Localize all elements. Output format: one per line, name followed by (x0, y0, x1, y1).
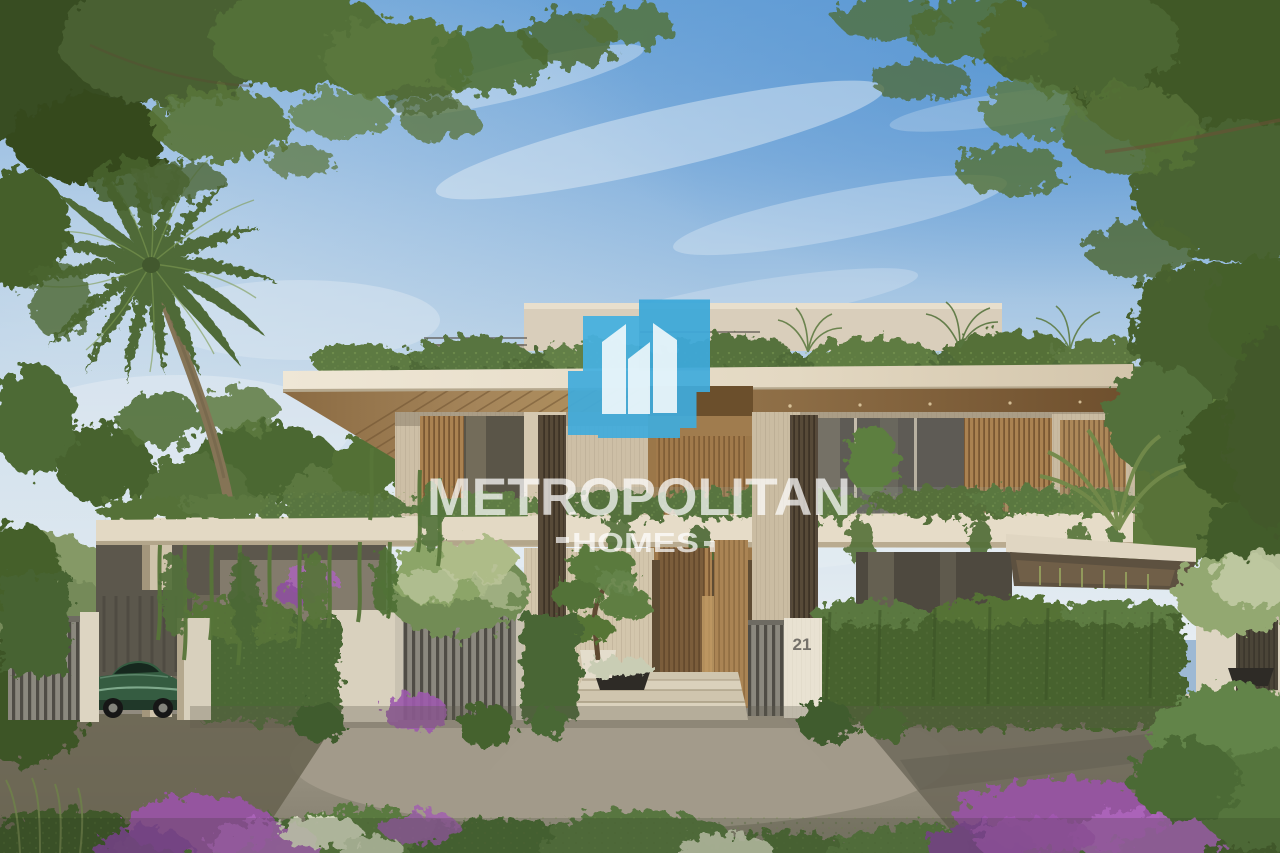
svg-text:21: 21 (793, 635, 812, 654)
svg-text:HOMES: HOMES (572, 527, 699, 558)
svg-text:METROPOLITAN: METROPOLITAN (427, 468, 851, 527)
